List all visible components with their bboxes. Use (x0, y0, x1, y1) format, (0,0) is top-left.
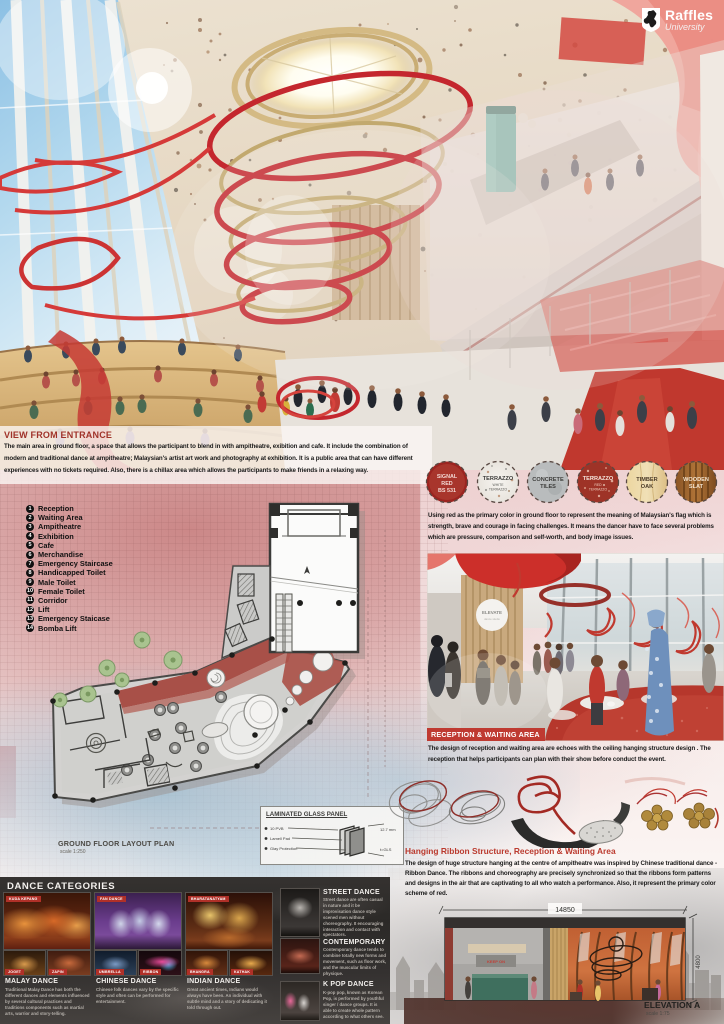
svg-text:WHITE: WHITE (493, 483, 505, 487)
svg-text:10 PVB: 10 PVB (270, 826, 284, 831)
svg-text:Glay Protection: Glay Protection (270, 846, 297, 851)
svg-text:TIMBER: TIMBER (636, 477, 657, 483)
svg-text:ELEVATE: ELEVATE (482, 610, 502, 615)
svg-text:WOODEN: WOODEN (683, 477, 709, 483)
svg-text:TERRAZZO: TERRAZZO (583, 476, 614, 482)
svg-text:SIGNAL: SIGNAL (437, 474, 458, 480)
svg-text:RED: RED (594, 483, 602, 487)
svg-text:SLAT: SLAT (689, 484, 704, 490)
svg-text:CONCRETE: CONCRETE (532, 477, 564, 483)
svg-text:TERRAZZO: TERRAZZO (589, 488, 608, 492)
svg-text:KEEP ON: KEEP ON (487, 959, 505, 964)
svg-text:TERRAZZO: TERRAZZO (483, 476, 514, 482)
svg-text:TILES: TILES (540, 484, 556, 490)
svg-text:dance studio: dance studio (484, 617, 500, 621)
svg-text:OAK: OAK (641, 484, 653, 490)
svg-text:TERRAZZO: TERRAZZO (489, 488, 508, 492)
svg-text:14850: 14850 (555, 907, 575, 914)
svg-text:Lamell Pad: Lamell Pad (270, 836, 290, 841)
svg-text:4800: 4800 (696, 955, 702, 969)
svg-text:RED: RED (441, 481, 452, 487)
svg-text:BS 531: BS 531 (438, 488, 456, 494)
